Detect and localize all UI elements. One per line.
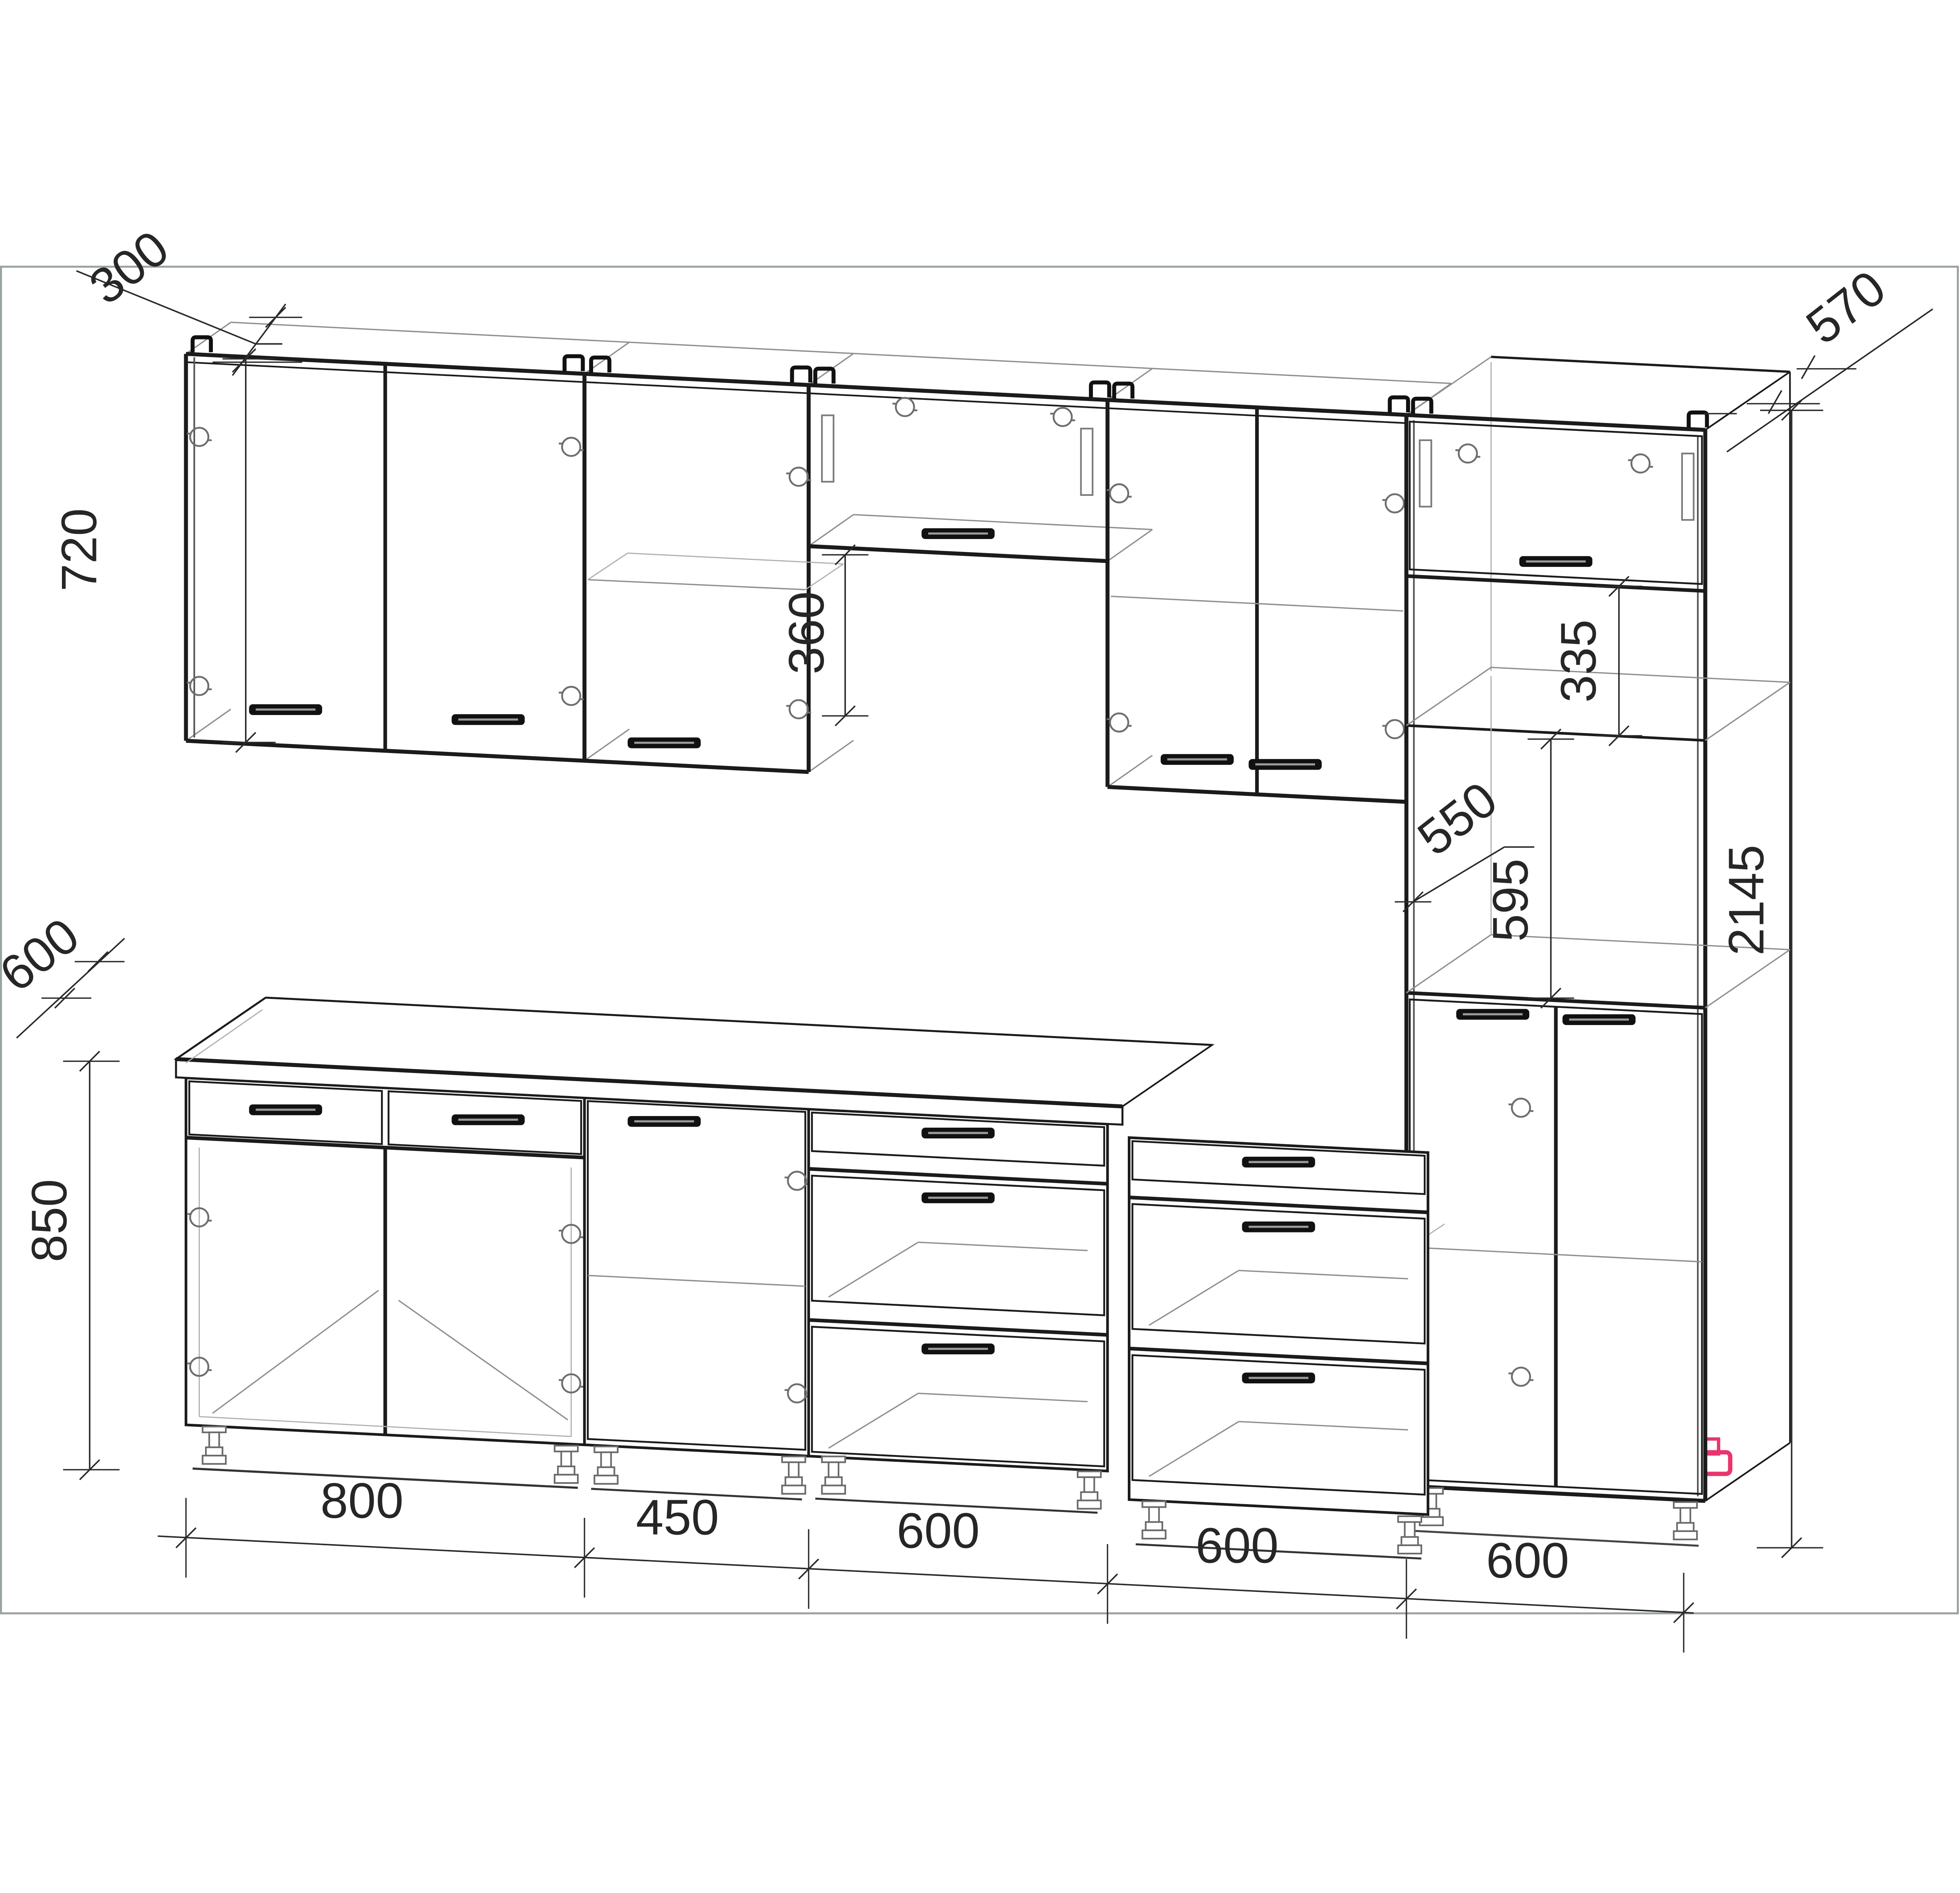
dim-wall-height-label: 720 xyxy=(51,508,107,592)
hood-cabinet-struts xyxy=(822,415,1093,495)
dim-base-height-label: 850 xyxy=(21,1179,77,1262)
base-cabinet-450 xyxy=(584,1098,809,1499)
kitchen-cabinet-technical-drawing: 300 720 360 570 xyxy=(0,0,1960,1893)
dim-worktop-depth-600: 600 xyxy=(0,907,125,1038)
dim-tall-height-2145: 2145 xyxy=(1718,400,1823,1557)
dim-hood-height-360: 360 xyxy=(779,545,868,726)
hinge-icon xyxy=(1050,408,1075,426)
dim-worktop-depth-label: 600 xyxy=(0,907,89,1002)
base-cabinet-800 xyxy=(186,1078,584,1488)
hood-cabinet-bottom-edge xyxy=(809,546,1107,561)
dim-wall-height-720: 720 xyxy=(51,349,276,752)
wall-cabinet-row xyxy=(186,322,1451,802)
dim-base-height-850: 850 xyxy=(21,1051,120,1480)
dim-bottom-widths: 800 450 600 600 600 xyxy=(158,1473,1693,1653)
handle-icon xyxy=(249,704,322,715)
base-drawer-unit-600-2-offset xyxy=(1129,1138,1428,1559)
hinge-icon xyxy=(893,398,918,416)
dim-width-450-label: 450 xyxy=(636,1489,719,1545)
wall-row-top-edge xyxy=(186,354,1406,415)
dim-tall-depth-570: 570 xyxy=(1704,260,1933,452)
wall-cabinet-450-shelf xyxy=(588,553,843,590)
dim-width-600-2-label: 600 xyxy=(1196,1517,1279,1573)
dim-shelf-height-label: 335 xyxy=(1551,619,1606,702)
dim-width-600-3-label: 600 xyxy=(1486,1533,1569,1588)
base-drawer-unit-600-1 xyxy=(809,1109,1107,1513)
dim-hood-height-label: 360 xyxy=(779,591,834,674)
dim-width-800-label: 800 xyxy=(320,1473,403,1528)
dim-tall-depth-label: 570 xyxy=(1796,260,1895,354)
dim-width-600-1-label: 600 xyxy=(897,1503,980,1558)
dim-wall-depth-label: 300 xyxy=(79,220,178,314)
dim-tall-height-label: 2145 xyxy=(1718,845,1774,956)
dim-niche-height-label: 595 xyxy=(1483,858,1538,942)
